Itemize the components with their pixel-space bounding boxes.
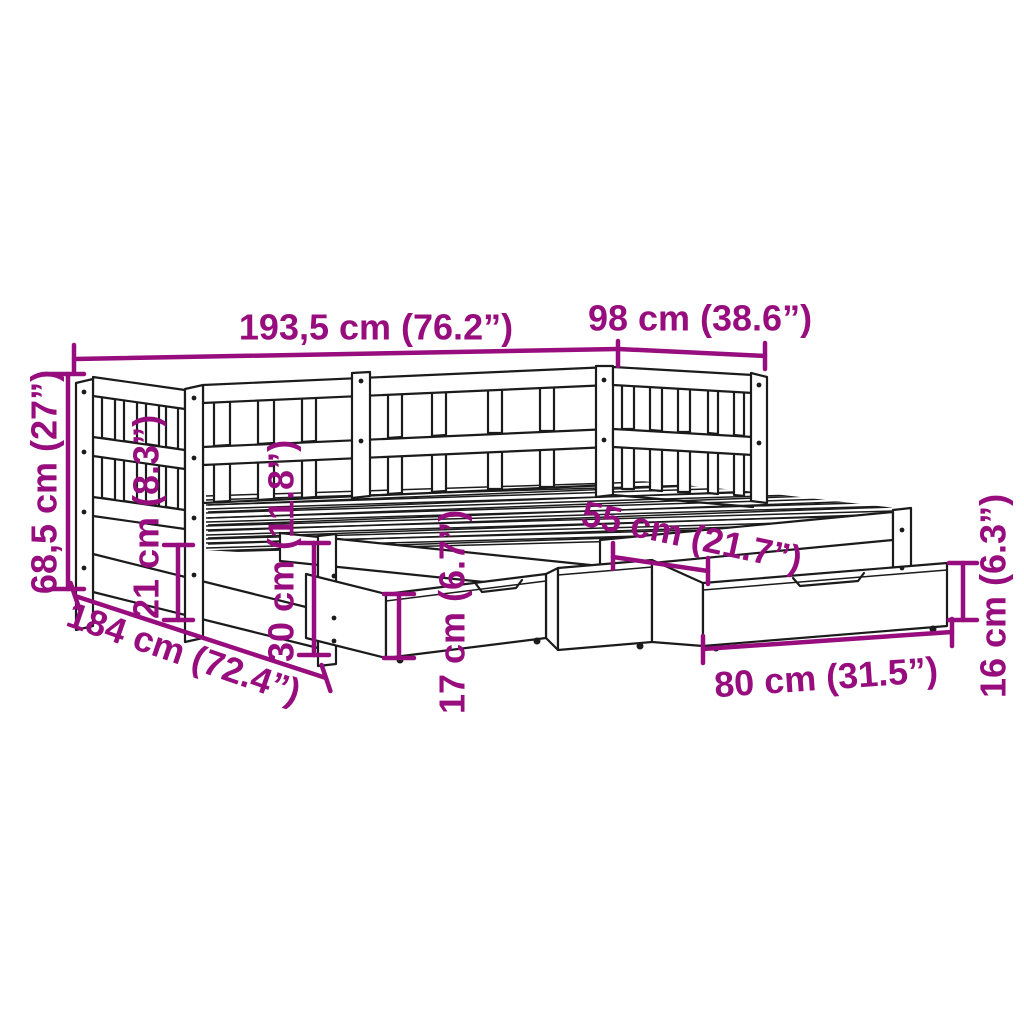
side-end-post bbox=[751, 373, 767, 503]
side-rail bbox=[613, 367, 767, 507]
drawer-left-gap bbox=[546, 568, 558, 650]
dimension-label-drawer-front-height: 17 cm (6.7”) bbox=[432, 510, 473, 714]
dimension-label-underbed-clearance: 30 cm (11.8”) bbox=[261, 440, 302, 662]
dimension-label-overall-height: 68,5 cm (27”) bbox=[24, 370, 65, 594]
dim-drawer-side-height: 16 cm (6.3”) bbox=[949, 494, 1014, 698]
corner-post bbox=[596, 366, 613, 497]
dimension-label-overall-width: 98 cm (38.6”) bbox=[588, 298, 812, 339]
dim-overall-length: 193,5 cm (76.2”) bbox=[74, 307, 618, 373]
dim-overall-width: 98 cm (38.6”) bbox=[588, 298, 812, 370]
panel-outer-post bbox=[76, 379, 93, 630]
bed-dimension-diagram: 193,5 cm (76.2”) 98 cm (38.6”) 68,5 cm (… bbox=[0, 0, 1024, 1024]
drawer-right-gap bbox=[652, 560, 703, 646]
drawers bbox=[306, 560, 947, 664]
dimension-label-rail-height: 21 cm (8.3”) bbox=[126, 415, 167, 619]
back-center-post bbox=[352, 372, 370, 498]
dimension-label-drawer-side-height: 16 cm (6.3”) bbox=[973, 494, 1014, 698]
dimension-label-overall-length: 193,5 cm (76.2”) bbox=[239, 307, 513, 348]
panel-inner-post bbox=[185, 385, 203, 642]
dim-drawer-depth: 55 cm (21.7”) bbox=[578, 493, 806, 584]
bed-drawing bbox=[76, 366, 947, 666]
dimension-label-drawer-width: 80 cm (31.5”) bbox=[713, 649, 939, 706]
dimension-diagram-page: 193,5 cm (76.2”) 98 cm (38.6”) 68,5 cm (… bbox=[0, 0, 1024, 1024]
